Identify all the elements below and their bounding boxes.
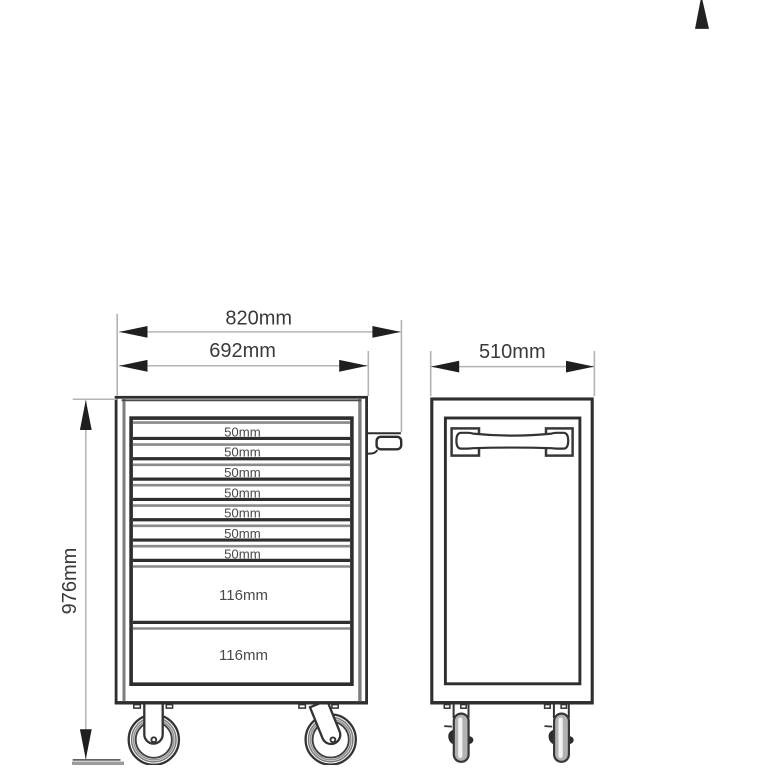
svg-text:50mm: 50mm: [224, 546, 261, 561]
svg-text:50mm: 50mm: [224, 526, 261, 541]
svg-text:50mm: 50mm: [224, 424, 261, 439]
svg-text:976mm: 976mm: [59, 548, 81, 615]
svg-text:820mm: 820mm: [225, 307, 292, 329]
svg-text:116mm: 116mm: [219, 587, 268, 604]
svg-text:50mm: 50mm: [224, 506, 261, 521]
svg-text:50mm: 50mm: [224, 485, 261, 500]
svg-text:50mm: 50mm: [224, 465, 261, 480]
svg-text:116mm: 116mm: [219, 647, 268, 664]
svg-text:692mm: 692mm: [209, 340, 276, 362]
svg-text:50mm: 50mm: [224, 445, 261, 460]
svg-text:510mm: 510mm: [479, 341, 546, 363]
